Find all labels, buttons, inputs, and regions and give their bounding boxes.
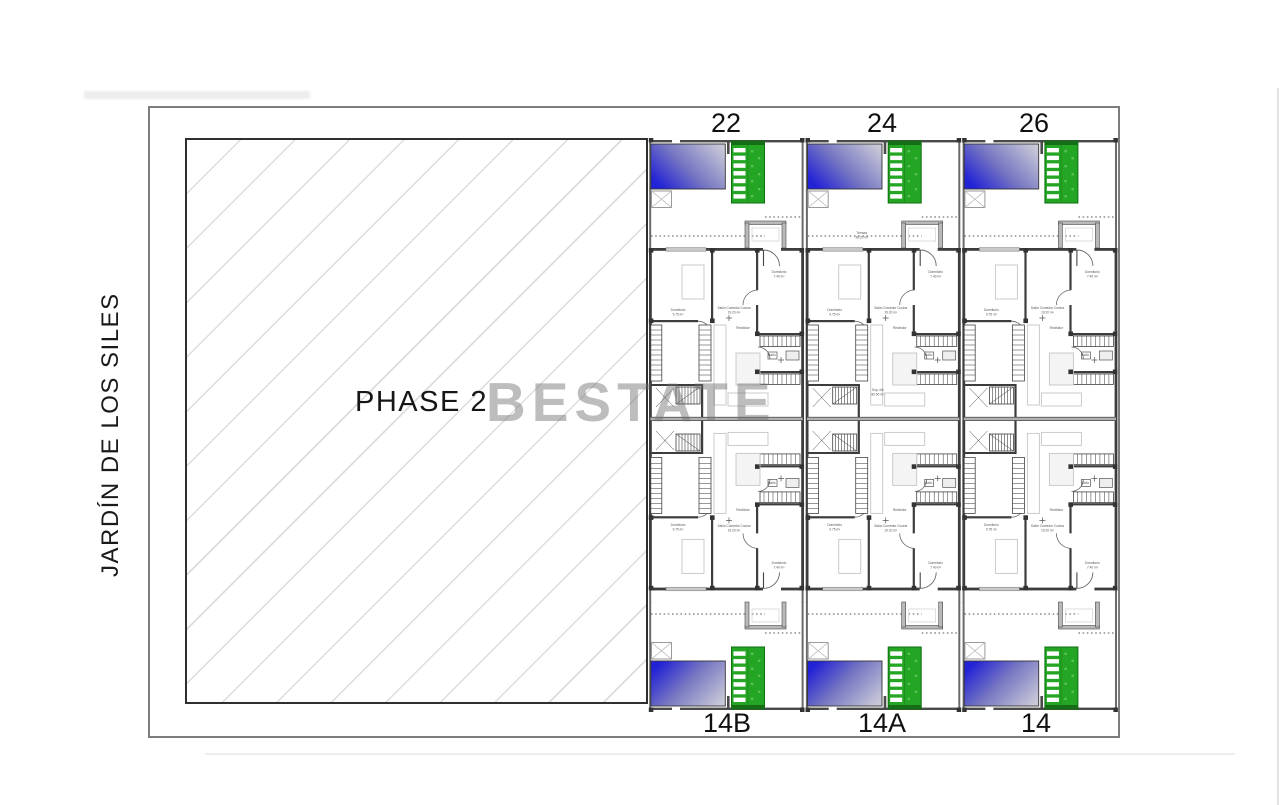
street-label: JARDÍN DE LOS SILES bbox=[97, 276, 143, 594]
bestate-watermark: BESTATE bbox=[486, 370, 777, 434]
unit-label-top-1: 22 bbox=[681, 108, 771, 139]
scan-artifact-bottom bbox=[205, 753, 1235, 755]
unit-label-bottom-1: 14B bbox=[682, 708, 772, 739]
phase2-label: PHASE 2 bbox=[355, 386, 488, 419]
unit-label-top-2: 24 bbox=[837, 108, 927, 139]
scan-artifact-right bbox=[1277, 88, 1279, 805]
unit-label-bottom-3: 14 bbox=[991, 708, 1081, 739]
scan-artifact-top bbox=[84, 91, 310, 99]
svg-text:Sup. útil: Sup. útil bbox=[872, 388, 884, 392]
svg-text:Terraza: Terraza bbox=[856, 231, 867, 235]
site-plan-canvas: JARDÍN DE LOS SILES PHASE 2 22 24 26 14B… bbox=[0, 0, 1280, 805]
unit-label-top-3: 26 bbox=[989, 108, 1079, 139]
svg-text:89.50 m²: 89.50 m² bbox=[871, 393, 884, 397]
unit-label-bottom-2: 14A bbox=[837, 708, 927, 739]
svg-text:38.20 m²: 38.20 m² bbox=[855, 236, 868, 240]
